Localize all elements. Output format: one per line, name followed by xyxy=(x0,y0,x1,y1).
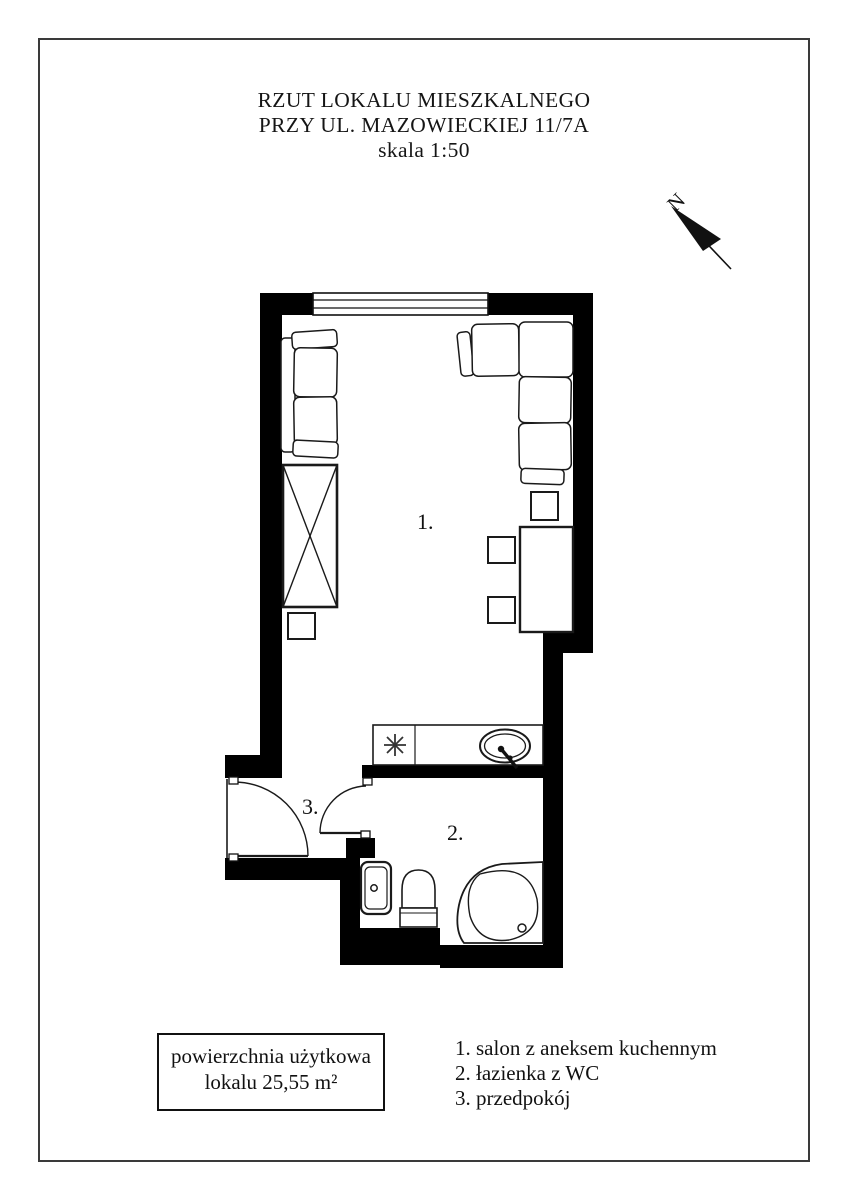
cooktop-symbol xyxy=(384,734,406,756)
area-line-1: powierzchnia użytkowa xyxy=(159,1043,383,1069)
table xyxy=(520,527,573,632)
wall-hall-top xyxy=(225,755,282,778)
chair xyxy=(531,492,558,520)
bathroom-sink xyxy=(361,862,391,914)
room-legend: 1. salon z aneksem kuchennym 2. łazienka… xyxy=(455,1036,717,1111)
wall-right-upper xyxy=(573,293,593,653)
door-jamb xyxy=(229,854,238,861)
north-arrow-icon: N xyxy=(662,188,731,269)
bathtub xyxy=(457,862,543,943)
kitchen-counter xyxy=(373,725,543,768)
window xyxy=(313,293,488,315)
room-label-bathroom: 2. xyxy=(447,820,464,845)
stool xyxy=(288,613,315,639)
dining-table-set xyxy=(488,492,573,632)
chair xyxy=(488,597,515,623)
door-swing-arc xyxy=(234,782,308,856)
wall-left xyxy=(260,293,282,778)
usable-area-box: powierzchnia użytkowa lokalu 25,55 m² xyxy=(157,1033,385,1111)
chair xyxy=(488,537,515,563)
north-label: N xyxy=(662,188,690,216)
floor-plan: 1. 2. 3. N xyxy=(0,0,848,1200)
door-swing-arc xyxy=(320,786,366,833)
legend-item: 2. łazienka z WC xyxy=(455,1061,717,1086)
bathroom-door xyxy=(320,778,372,838)
legend-item: 3. przedpokój xyxy=(455,1086,717,1111)
entrance-door xyxy=(227,777,308,861)
wardrobe xyxy=(283,465,337,607)
wall-bath-bottom-left xyxy=(355,928,440,965)
wall-bath-stub xyxy=(346,838,375,858)
wall-hall-bottom xyxy=(225,858,360,880)
wall-right-lower xyxy=(543,632,563,968)
room-label-hallway: 3. xyxy=(302,794,319,819)
door-jamb xyxy=(229,777,238,784)
door-jamb xyxy=(363,778,372,785)
wall-bath-bottom-right xyxy=(440,945,563,968)
floor-plan-page: RZUT LOKALU MIESZKALNEGO PRZY UL. MAZOWI… xyxy=(0,0,848,1200)
room-label-living: 1. xyxy=(417,509,434,534)
two-seat-sofa xyxy=(281,329,338,458)
toilet xyxy=(400,870,437,927)
area-line-2: lokalu 25,55 m² xyxy=(159,1069,383,1095)
corner-sofa xyxy=(457,322,573,485)
legend-item: 1. salon z aneksem kuchennym xyxy=(455,1036,717,1061)
door-jamb xyxy=(361,831,370,838)
